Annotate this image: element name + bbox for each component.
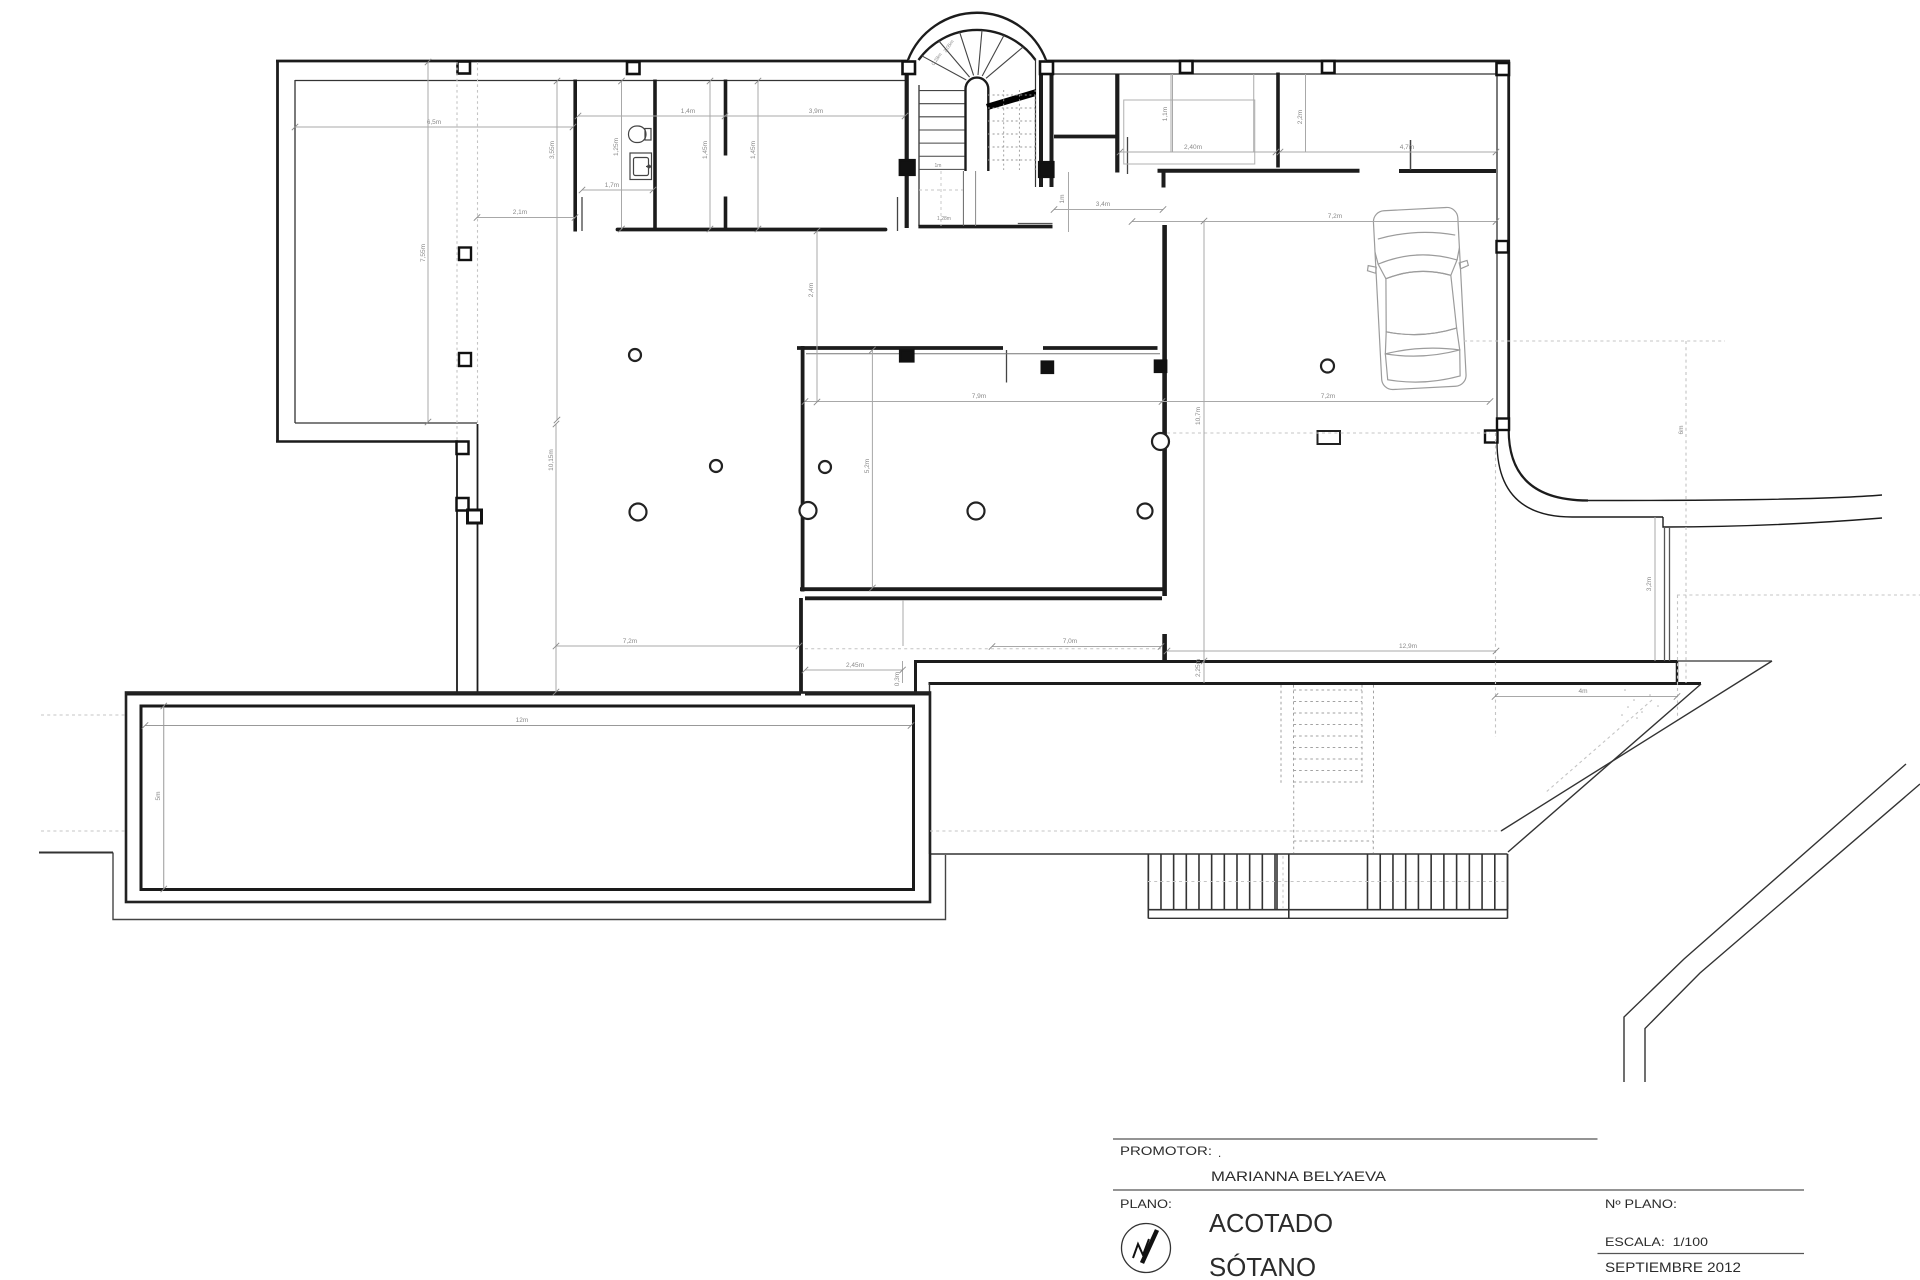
svg-text:6m: 6m <box>1678 425 1685 434</box>
svg-text:7,2m: 7,2m <box>1328 213 1342 220</box>
svg-text:4,7m: 4,7m <box>1400 144 1414 151</box>
svg-text:.: . <box>1218 1148 1221 1160</box>
svg-text:7,2m: 7,2m <box>623 638 637 645</box>
svg-text:1,28m: 1,28m <box>937 216 951 222</box>
svg-text:1,45m: 1,45m <box>702 141 709 159</box>
svg-text:7,2m: 7,2m <box>1321 393 1335 400</box>
svg-text:PLANO:: PLANO: <box>1120 1199 1172 1211</box>
svg-text:ACOTADO: ACOTADO <box>1209 1208 1333 1238</box>
svg-text:6,5m: 6,5m <box>427 119 441 126</box>
svg-text:3,9m: 3,9m <box>809 108 823 115</box>
svg-text:2,1m: 2,1m <box>513 209 527 216</box>
svg-text:1,4m: 1,4m <box>681 108 695 115</box>
svg-text:10,15m: 10,15m <box>548 449 555 471</box>
svg-text:4m: 4m <box>1578 688 1587 695</box>
svg-text:SÓTANO: SÓTANO <box>1209 1252 1316 1280</box>
svg-text:2,45m: 2,45m <box>846 662 864 669</box>
svg-text:12,9m: 12,9m <box>1399 643 1417 650</box>
svg-text:3,4m: 3,4m <box>1096 201 1110 208</box>
svg-text:2,40m: 2,40m <box>1184 144 1202 151</box>
svg-text:MARIANNA BELYAEVA: MARIANNA BELYAEVA <box>1211 1169 1386 1184</box>
svg-text:3,2m: 3,2m <box>1646 577 1653 591</box>
svg-text:1,45m: 1,45m <box>750 141 757 159</box>
svg-text:12m: 12m <box>516 717 529 724</box>
svg-text:2,2m: 2,2m <box>1297 110 1304 124</box>
svg-text:2,25m: 2,25m <box>1195 659 1202 677</box>
svg-text:7,9m: 7,9m <box>972 393 986 400</box>
svg-text:5m: 5m <box>155 791 162 800</box>
svg-text:1m: 1m <box>935 163 942 169</box>
svg-text:10,7m: 10,7m <box>1195 407 1202 425</box>
svg-text:ESCALA: 1/100: ESCALA: 1/100 <box>1605 1235 1708 1249</box>
svg-text:5,2m: 5,2m <box>864 459 871 473</box>
svg-text:7,55m: 7,55m <box>420 244 427 262</box>
svg-text:SEPTIEMBRE 2012: SEPTIEMBRE 2012 <box>1605 1259 1741 1275</box>
svg-text:2,4m: 2,4m <box>808 283 815 297</box>
svg-text:7,0m: 7,0m <box>1063 638 1077 645</box>
svg-text:1m: 1m <box>1059 194 1066 203</box>
svg-text:0,3m: 0,3m <box>894 672 901 686</box>
svg-text:1,1m: 1,1m <box>1162 107 1169 121</box>
svg-text:1,25m: 1,25m <box>613 138 620 156</box>
svg-text:Nº PLANO:: Nº PLANO: <box>1605 1199 1677 1211</box>
svg-text:1,7m: 1,7m <box>605 182 619 189</box>
svg-text:3,55m: 3,55m <box>549 141 556 159</box>
svg-text:PROMOTOR:: PROMOTOR: <box>1120 1146 1212 1158</box>
